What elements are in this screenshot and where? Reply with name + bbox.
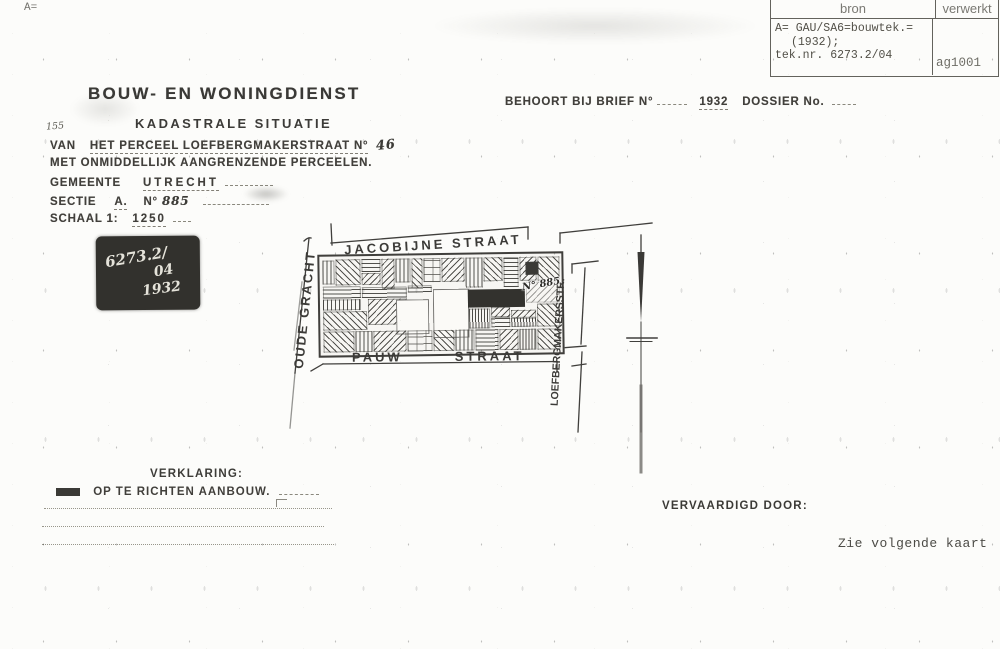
gemeente-value: UTRECHT bbox=[143, 177, 219, 191]
ruled-line bbox=[44, 508, 332, 509]
fill-in-dots bbox=[279, 485, 319, 495]
schaal-value: 1250 bbox=[132, 213, 166, 227]
city-block-parcels bbox=[317, 251, 564, 357]
fill-in-dots bbox=[203, 195, 269, 205]
fill-in-dots bbox=[173, 212, 191, 222]
source-line-3: tek.nr. 6273.2/04 bbox=[775, 49, 932, 63]
legend-black-swatch bbox=[56, 488, 80, 496]
fill-in-dots bbox=[657, 95, 687, 105]
perceel-line: VAN HET PERCEEL LOEFBERGMAKERSTRAAT N° 4… bbox=[50, 138, 396, 153]
gemeente-line: GEMEENTE UTRECHT bbox=[50, 176, 273, 189]
vervaardigd-door-label: VERVAARDIGD DOOR: bbox=[662, 500, 808, 512]
schaal-line: SCHAAL 1: 1250 bbox=[50, 212, 191, 225]
legend-item-label: OP TE RICHTEN AANBOUW. bbox=[93, 486, 270, 498]
register-table-body: A= GAU/SA6=bouwtek.= (1932); tek.nr. 627… bbox=[771, 19, 998, 75]
register-table-header: bron verwerkt bbox=[771, 0, 998, 19]
house-number-value: 46 bbox=[376, 137, 397, 154]
source-line-1: A= GAU/SA6=bouwtek.= bbox=[775, 22, 932, 36]
processed-code: ag1001 bbox=[936, 56, 981, 70]
stray-corner-mark bbox=[276, 499, 287, 507]
fill-in-dots bbox=[832, 95, 856, 105]
sectie-value: A. bbox=[114, 196, 127, 210]
register-processed-cell: ag1001 bbox=[932, 19, 998, 75]
stamp-year: 1932 bbox=[141, 278, 182, 299]
pauw-word: PAUW bbox=[352, 349, 403, 364]
new-building-parcel bbox=[468, 289, 525, 308]
gemeente-label: GEMEENTE bbox=[50, 177, 121, 189]
service-title: BOUW- EN WONINGDIENST bbox=[88, 84, 361, 104]
sectie-label: SECTIE bbox=[50, 196, 96, 208]
stamp-number-suffix: 04 bbox=[153, 261, 175, 280]
cadastral-map: JACOBIJNE STRAAT PAUWSTRAAT OUDE GRACHT … bbox=[280, 210, 680, 480]
register-source-cell: A= GAU/SA6=bouwtek.= (1932); tek.nr. 627… bbox=[771, 19, 932, 75]
ruled-line bbox=[42, 544, 334, 545]
brief-year-value: 1932 bbox=[699, 96, 728, 110]
schaal-label: SCHAAL 1: bbox=[50, 213, 118, 225]
next-map-note: Zie volgende kaart bbox=[838, 536, 987, 551]
margin-note: 155 bbox=[46, 120, 65, 132]
straat-word: STRAAT bbox=[455, 348, 525, 364]
legend-heading: VERKLARING: bbox=[150, 468, 243, 480]
sectie-no-label: N° bbox=[143, 196, 158, 208]
behoort-label: BEHOORT BIJ BRIEF N° bbox=[505, 96, 653, 108]
legend-item-aanbouw: OP TE RICHTEN AANBOUW. bbox=[56, 485, 319, 498]
register-col-bron: bron bbox=[771, 0, 935, 18]
corner-annotation: A= bbox=[24, 2, 37, 14]
adjacent-parcels-line: MET ONMIDDELLIJK AANGRENZENDE PERCEELEN. bbox=[50, 157, 372, 169]
archive-number-stamp: 6273.2/ 04 1932 bbox=[96, 236, 201, 311]
dossier-label: DOSSIER No. bbox=[742, 96, 824, 108]
source-line-2: (1932); bbox=[775, 36, 932, 50]
van-label: VAN bbox=[50, 140, 76, 152]
sectie-line: SECTIE A. N° 885 bbox=[50, 194, 269, 208]
perceel-value: HET PERCEEL LOEFBERGMAKERSTRAAT N° bbox=[90, 140, 369, 154]
document-type-title: KADASTRALE SITUATIE bbox=[135, 116, 332, 131]
sectie-no-value: 885 bbox=[162, 194, 189, 208]
register-col-verwerkt: verwerkt bbox=[935, 0, 998, 18]
scan-smudge bbox=[430, 8, 760, 44]
fill-in-dots bbox=[225, 176, 273, 186]
behoort-bij-line: BEHOORT BIJ BRIEF N° 1932 DOSSIER No. bbox=[505, 95, 856, 108]
street-label-pauwstraat: PAUWSTRAAT bbox=[352, 348, 525, 365]
scanned-document-page: A= bron verwerkt A= GAU/SA6=bouwtek.= (1… bbox=[0, 0, 1000, 649]
ruled-line bbox=[42, 526, 324, 527]
archive-register-table: bron verwerkt A= GAU/SA6=bouwtek.= (1932… bbox=[770, 0, 999, 77]
